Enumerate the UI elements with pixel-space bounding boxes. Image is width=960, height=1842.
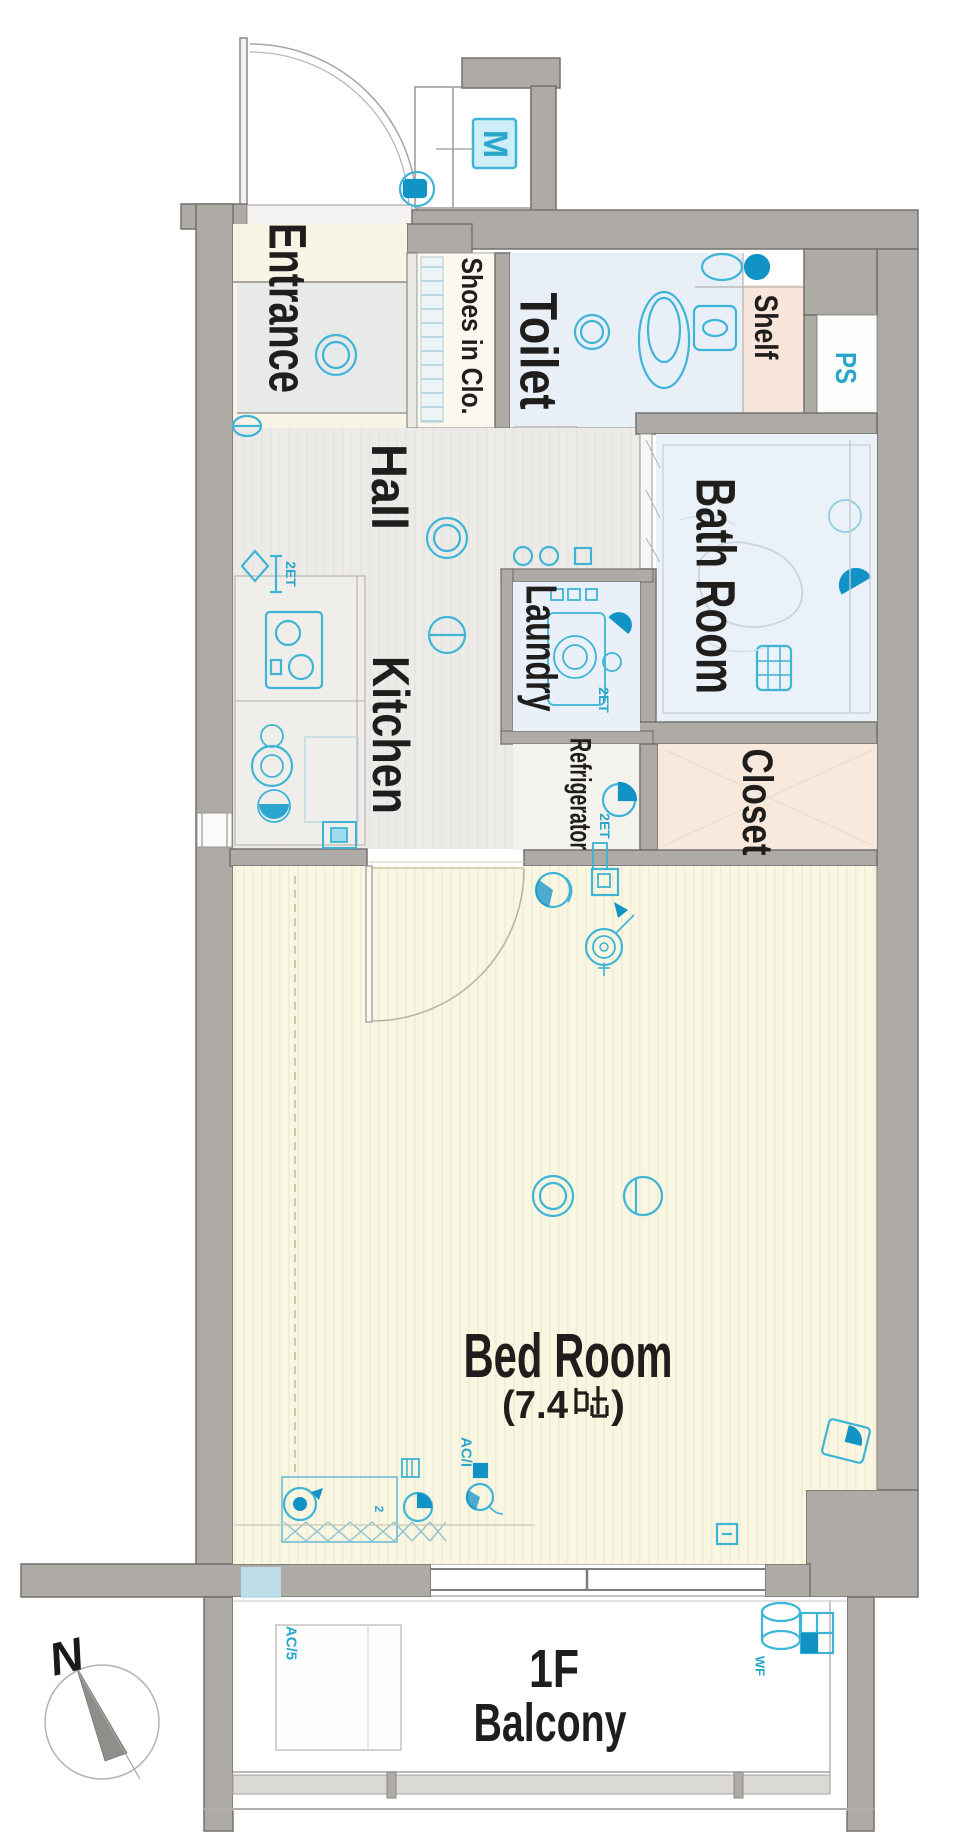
svg-text:AC/I: AC/I [458, 1437, 475, 1467]
svg-text:AC/5: AC/5 [283, 1626, 300, 1660]
svg-text:Kitchen: Kitchen [361, 656, 419, 814]
svg-text:2: 2 [372, 1506, 386, 1513]
svg-text:M: M [476, 130, 514, 158]
svg-text:Entrance: Entrance [258, 223, 317, 393]
svg-text:2ET: 2ET [596, 687, 612, 713]
svg-text:2ET: 2ET [597, 813, 613, 839]
svg-text:Hall: Hall [361, 444, 417, 530]
svg-text:Bed Room: Bed Room [464, 1322, 673, 1391]
svg-text:(7.4: (7.4 [502, 1384, 568, 1427]
svg-text:): ) [611, 1384, 625, 1427]
svg-text:Refrigerator: Refrigerator [564, 738, 597, 850]
svg-text:2ET: 2ET [283, 561, 299, 587]
svg-text:WF: WF [753, 1656, 768, 1676]
svg-text:Closet: Closet [733, 749, 781, 856]
svg-text:1F: 1F [529, 1639, 579, 1699]
svg-text:PS: PS [829, 352, 861, 384]
svg-text:Shoes in Clo.: Shoes in Clo. [455, 258, 487, 415]
svg-text:Balcony: Balcony [474, 1693, 627, 1753]
svg-text:Shelf: Shelf [748, 295, 784, 360]
svg-text:Laundry: Laundry [517, 585, 566, 712]
svg-text:Bath Room: Bath Room [685, 478, 748, 694]
svg-text:Toilet: Toilet [509, 293, 568, 410]
